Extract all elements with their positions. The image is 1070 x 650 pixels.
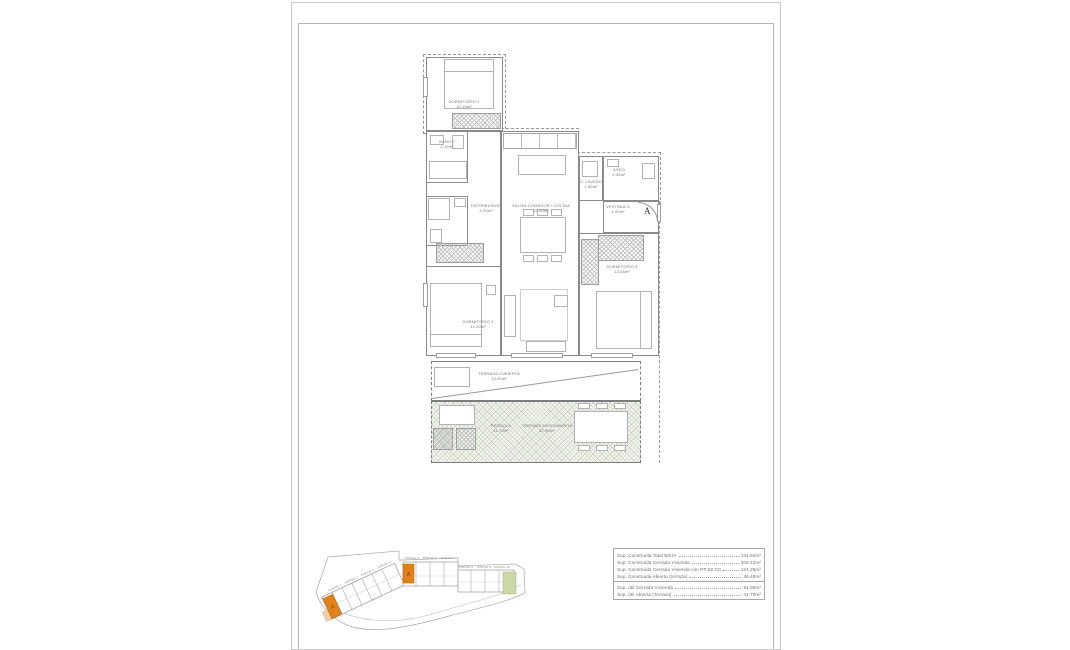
dotted-leader xyxy=(674,595,742,596)
dashed-line-kitchen-top xyxy=(501,128,579,129)
sofa-2 xyxy=(526,341,566,352)
label-lavado: C. LAVADO 1.86m² xyxy=(580,179,602,190)
sofa xyxy=(504,295,516,337)
site-portal-label: PORTAL 6 xyxy=(423,556,437,560)
outdoor-chair xyxy=(578,403,590,409)
window-dorm1 xyxy=(423,283,428,307)
label-pergola: PÉRGOLA 41.70m² xyxy=(491,423,511,434)
row-value: 124.25m² xyxy=(741,567,761,572)
label-vestibulo: VESTÍBULO 4.95m² xyxy=(606,204,630,215)
bano1-toilet xyxy=(430,229,442,243)
room-area: 37.80m² xyxy=(522,428,573,433)
table-row: Sup. útil Abierta (Terraza) 41.70m² xyxy=(617,590,761,597)
dining-chair xyxy=(523,255,534,262)
table-row: Sup. útil Cerrada Vivienda 91.80m² xyxy=(617,583,761,590)
dotted-leader xyxy=(679,556,739,557)
dorm3-wardrobe-2 xyxy=(581,239,599,285)
outdoor-chair xyxy=(578,445,590,451)
label-bano-2: BAÑO 2 4.15m² xyxy=(439,139,455,150)
label-dormitorio-2: DORMITORIO 2 10.15m² xyxy=(448,99,479,110)
bano2-bathtub xyxy=(429,161,467,179)
dorm2-pillow xyxy=(445,60,493,72)
terrace-white-box xyxy=(439,405,475,425)
bano1-shower xyxy=(428,198,450,220)
armchair xyxy=(554,295,568,307)
room-area: 2.35m² xyxy=(612,172,625,177)
table-row: Sup. Construida Cerrada Vivienda 106.42m… xyxy=(617,558,761,565)
outdoor-chair xyxy=(596,403,608,409)
table-divider xyxy=(614,581,764,582)
row-value: 46.40m² xyxy=(743,574,761,579)
dorm1-wardrobe xyxy=(436,243,484,263)
dashed-boundary-right xyxy=(659,201,660,463)
label-salon: SALÓN-COMEDOR / COCINA 26.60m² xyxy=(512,203,570,214)
room-area: 4.95m² xyxy=(606,209,630,214)
drawing-sheet: DORMITORIO 2 10.15m² BAÑO 2 4.15m² DISTR… xyxy=(291,2,781,650)
label-distribuidor: DISTRIBUIDOR 3.20m² xyxy=(471,203,501,214)
dotted-leader xyxy=(675,588,742,589)
site-block-center: A PORTAL 5 PORTAL 6 PORTAL 7 xyxy=(403,556,458,586)
row-value: 91.80m² xyxy=(743,585,761,590)
dotted-leader xyxy=(689,577,741,578)
room-area: 10.15m² xyxy=(448,104,479,109)
row-label: Sup. útil Cerrada Vivienda xyxy=(617,585,673,590)
architectural-plan-page: { "floor_plan": { "rooms": [ {"name": "D… xyxy=(0,0,1070,650)
table-row: Sup. Construida Abierta (terraza) 46.40m… xyxy=(617,572,761,579)
dining-chair xyxy=(551,255,562,262)
aseo-sink xyxy=(607,159,619,167)
window-bottom-2 xyxy=(511,353,563,358)
outdoor-table xyxy=(574,411,628,443)
outdoor-chair xyxy=(614,445,626,451)
row-value: 134.84m² xyxy=(741,553,761,558)
bano1-sink xyxy=(454,198,466,207)
room-area: 13.90m² xyxy=(478,376,520,381)
dorm1-pillow xyxy=(431,334,481,346)
window-bottom-3 xyxy=(591,353,633,358)
dorm3-pillow xyxy=(640,292,651,348)
dotted-leader xyxy=(692,563,739,564)
lavado-washer xyxy=(582,161,598,177)
kitchen-island xyxy=(518,155,566,175)
label-dormitorio-3: DORMITORIO 3 12.08m² xyxy=(606,264,637,275)
label-dormitorio-1: DORMITORIO 1 14.30m² xyxy=(462,319,493,330)
room-area: 4.15m² xyxy=(439,144,455,149)
row-value: 106.42m² xyxy=(741,560,761,565)
dorm1-nightstand xyxy=(486,285,496,295)
room-area: 26.60m² xyxy=(512,208,570,213)
room-area: 3.20m² xyxy=(471,208,501,213)
room-area: 12.08m² xyxy=(606,269,637,274)
dining-table xyxy=(520,217,566,253)
dorm3-bed xyxy=(596,291,652,349)
dining-chair xyxy=(537,255,548,262)
kitchen-counter xyxy=(503,133,577,149)
dotted-leader xyxy=(723,570,738,571)
site-plan-svg: A PORTAL 1 PORTAL 2 PORTAL 3 PORTAL 4 A … xyxy=(311,546,561,638)
site-plan-key: A PORTAL 1 PORTAL 2 PORTAL 3 PORTAL 4 A … xyxy=(311,546,561,638)
row-label: Sup. útil Abierta (Terraza) xyxy=(617,592,672,597)
aseo-toilet xyxy=(642,163,655,179)
row-label: Sup. Construida Total BOJA xyxy=(617,553,677,558)
row-label: Sup. Construida Abierta (terraza) xyxy=(617,574,687,579)
areas-table: Sup. Construida Total BOJA 134.84m² Sup.… xyxy=(613,548,765,600)
dorm2-wardrobe xyxy=(452,113,501,129)
room-area: 14.30m² xyxy=(462,324,493,329)
section-marker-a: A xyxy=(644,206,651,216)
site-portal-label: PORTAL 9 xyxy=(477,565,491,569)
terrace-planter-1 xyxy=(433,428,453,450)
dorm1-bed xyxy=(430,283,482,347)
label-aseo: ASEO 2.35m² xyxy=(612,167,625,178)
site-portal-label: PORTAL 10 xyxy=(494,565,510,569)
site-portal-label: PORTAL 5 xyxy=(405,556,419,560)
site-block-right: PORTAL 8 PORTAL 9 PORTAL 10 xyxy=(458,565,516,594)
floor-plan: DORMITORIO 2 10.15m² BAÑO 2 4.15m² DISTR… xyxy=(406,51,676,471)
table-row: Sup. Construida Cerrada Vivienda con PP.… xyxy=(617,565,761,572)
outdoor-chair xyxy=(614,403,626,409)
table-row: Sup. Construida Total BOJA 134.84m² xyxy=(617,551,761,558)
window-bottom-1 xyxy=(436,353,476,358)
dorm3-wardrobe xyxy=(598,235,644,261)
window-dorm2 xyxy=(423,77,428,97)
terrace-planter-2 xyxy=(456,428,476,450)
outdoor-chair xyxy=(596,445,608,451)
row-label: Sup. Construida Cerrada Vivienda con PP.… xyxy=(617,567,721,572)
row-value: 41.70m² xyxy=(743,592,761,597)
site-portal-label: PORTAL 8 xyxy=(459,565,473,569)
label-terraza-cubierta: TERRAZA CUBIERTA 13.90m² xyxy=(478,371,520,382)
site-block-left: A PORTAL 1 PORTAL 2 PORTAL 3 PORTAL 4 xyxy=(314,559,404,622)
room-area: 1.86m² xyxy=(580,184,602,189)
label-terraza-descubierta: TERRAZA DESCUBIERTA 37.80m² xyxy=(522,423,573,434)
site-unit-green xyxy=(503,572,516,594)
terrace-table-covered xyxy=(434,367,470,387)
room-area: 41.70m² xyxy=(491,428,511,433)
row-label: Sup. Construida Cerrada Vivienda xyxy=(617,560,690,565)
site-portal-label: PORTAL 7 xyxy=(441,556,455,560)
